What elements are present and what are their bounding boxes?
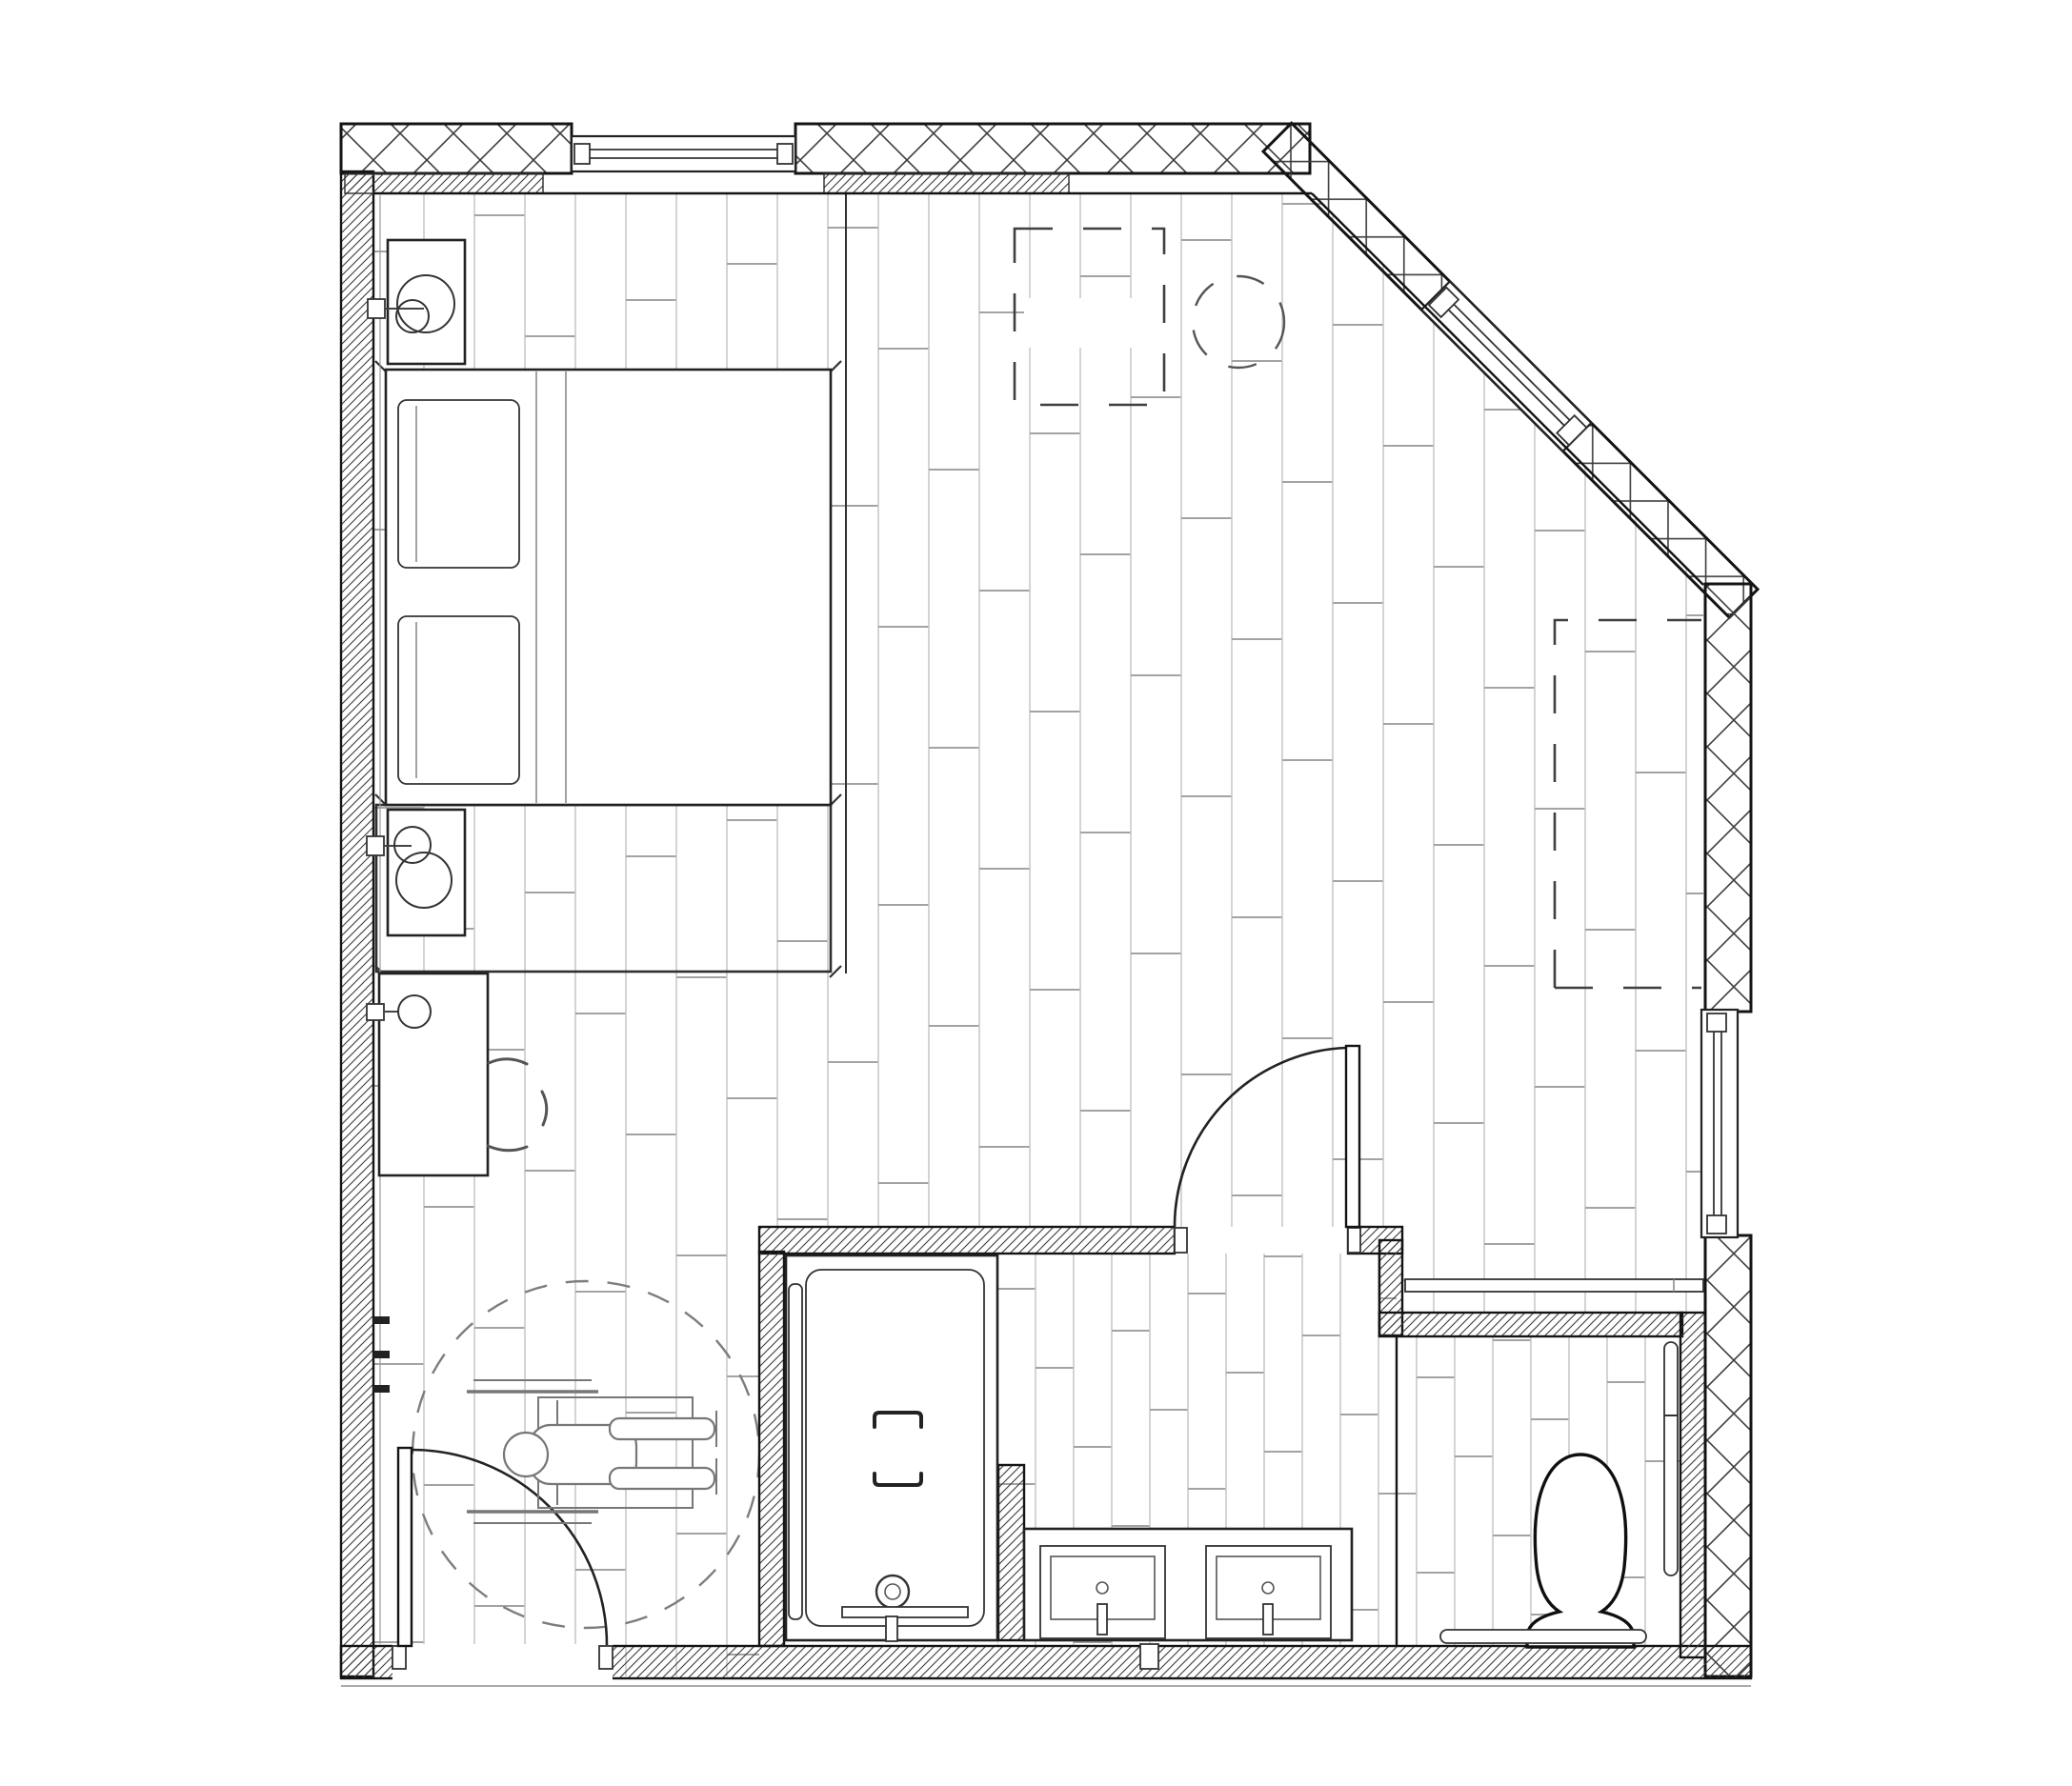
bathtub-drain-stem xyxy=(886,1616,897,1641)
toilet xyxy=(1527,1455,1634,1647)
tub-vanity-stub-wall xyxy=(998,1465,1024,1640)
right-window-stop xyxy=(1707,1013,1726,1032)
sconce-wall-plate xyxy=(367,836,384,855)
wall-finish-strip xyxy=(824,173,1069,193)
floor-plan xyxy=(0,0,2072,1786)
entry-door-leaf xyxy=(398,1448,412,1646)
dashed-wardrobe xyxy=(1555,620,1701,988)
sconce-wall-plate xyxy=(367,1004,384,1020)
bathtub-spout-bar xyxy=(842,1607,968,1617)
sink-faucet xyxy=(1263,1604,1273,1635)
exterior-wall-diagonal xyxy=(1263,123,1758,617)
plan-geometry xyxy=(341,123,1758,1686)
bottom-wall-break xyxy=(1140,1644,1158,1669)
bathtub-faucet xyxy=(876,1575,909,1608)
exterior-wall-top-left xyxy=(341,124,572,173)
exterior-wall-top-right xyxy=(795,124,1310,173)
sink-faucet xyxy=(1097,1604,1107,1635)
right-window-stop xyxy=(1707,1215,1726,1234)
toilet-grab-bar-horizontal xyxy=(1440,1630,1646,1643)
bathtub-basin xyxy=(806,1270,984,1626)
right-window xyxy=(1701,1010,1738,1237)
bathroom-stub-jamb xyxy=(1348,1228,1360,1253)
nightstand-top xyxy=(388,240,465,364)
floor-plan-canvas xyxy=(0,0,2072,1786)
exterior-wall-right-lower xyxy=(1705,1235,1751,1676)
wall-mount-tick xyxy=(373,1351,390,1358)
exterior-wall-left xyxy=(341,171,373,1676)
toilet-nook-wall-right xyxy=(1680,1313,1705,1657)
top-window-stop xyxy=(574,144,590,164)
bathroom-door-leaf xyxy=(1346,1046,1359,1227)
wall-mount-tick xyxy=(373,1316,390,1324)
desk-chair-sketch xyxy=(488,1059,547,1151)
bathroom-wall-left xyxy=(759,1252,784,1646)
entry-door-gap xyxy=(392,1644,613,1680)
desk xyxy=(379,973,488,1175)
bathroom-door-jamb xyxy=(1175,1228,1187,1253)
top-window-stop xyxy=(777,144,793,164)
bathroom-wall-top xyxy=(759,1227,1175,1254)
dashed-table-blank-patch xyxy=(1024,298,1143,348)
toilet-grab-bar-vertical xyxy=(1664,1342,1678,1575)
exterior-wall-right-upper xyxy=(1705,584,1751,1012)
entry-door-jamb xyxy=(599,1646,613,1669)
sconce-wall-plate xyxy=(368,299,385,318)
wall-ledge xyxy=(1405,1279,1703,1292)
top-window xyxy=(572,136,795,171)
diagonal-window-glazing xyxy=(1449,300,1573,424)
nightstand-bottom xyxy=(388,810,465,935)
bathtub-grab-bar xyxy=(789,1284,802,1619)
wheelchair-user-leg xyxy=(610,1468,714,1489)
wheelchair-user-head xyxy=(504,1433,548,1476)
wall-mount-tick xyxy=(373,1385,390,1393)
dashed-chair xyxy=(1193,276,1284,368)
wheelchair-user-leg xyxy=(610,1418,714,1439)
wall-finish-strip xyxy=(345,173,543,193)
toilet-nook-wall-top xyxy=(1379,1313,1682,1336)
diagonal-wall-inner-face xyxy=(1312,193,1703,585)
entry-door-jamb xyxy=(392,1646,406,1669)
